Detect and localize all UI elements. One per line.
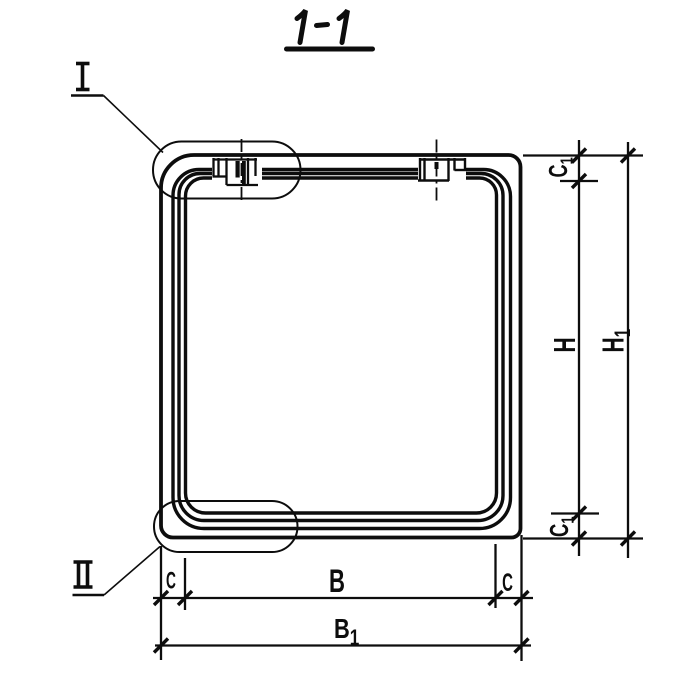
svg-text:B: B [329,563,345,599]
svg-text:C: C [166,568,176,595]
svg-text:C: C [502,569,513,597]
svg-text:H: H [547,337,582,352]
